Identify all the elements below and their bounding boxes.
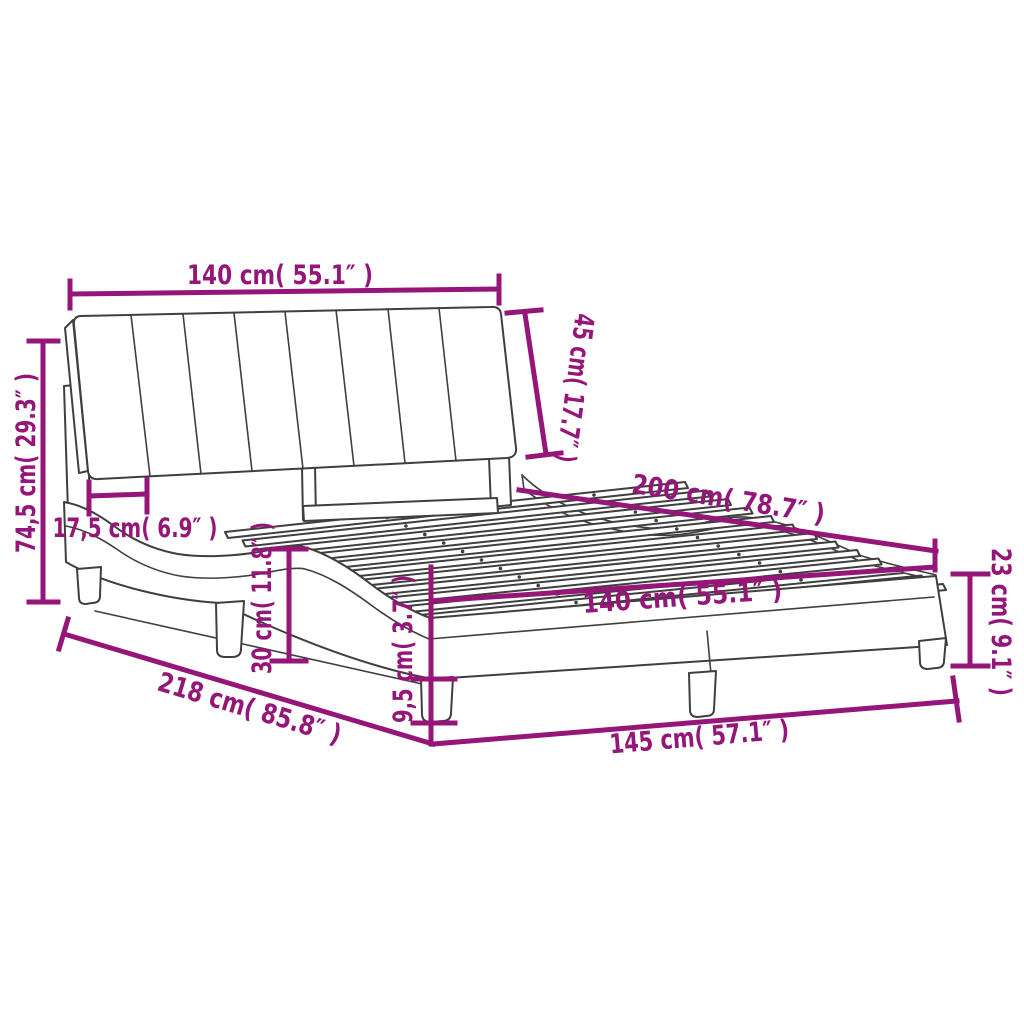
slat-screw-dot: [758, 561, 762, 565]
slat-screw-dot: [442, 541, 446, 545]
slat-screw-dot: [675, 527, 679, 531]
label-frame-side-height: 23 cm( 9.1″ ): [985, 548, 1016, 696]
slat-screw-dot: [518, 575, 522, 579]
slat-screw-dot: [480, 558, 484, 562]
slat-screw-dot: [536, 584, 540, 588]
slat-screw-dot: [461, 550, 465, 554]
leg-headboard: [77, 567, 101, 604]
slat-screw-dot: [654, 519, 658, 523]
bed-dimension-diagram: 140 cm( 55.1″ ) 45 cm( 17.7″ ) 74,5 cm( …: [0, 0, 1024, 1024]
slat-screw-dot: [716, 544, 720, 548]
label-overall-height: 74,5 cm( 29.3″ ): [11, 373, 42, 553]
slat-screw-dot: [696, 536, 700, 540]
dim-headboard-leg-inset: [89, 480, 147, 514]
slat-screw-dot: [634, 510, 638, 514]
label-side-wave-height: 30 cm( 11.8″ ): [247, 522, 278, 674]
leg-front-mid: [689, 671, 716, 717]
diagram-canvas: 140 cm( 55.1″ ) 45 cm( 17.7″ ) 74,5 cm( …: [0, 0, 1024, 1024]
label-leg-height: 9,5 cm( 3.7″ ): [388, 575, 419, 723]
leg-front-left: [421, 677, 453, 722]
slat-screw-dot: [737, 553, 741, 557]
slat-screw-dot: [779, 570, 783, 574]
slat-screw-dot: [404, 524, 408, 528]
label-headboard-leg-inset: 17,5 cm( 6.9″ ): [53, 513, 218, 544]
label-headboard-width: 140 cm( 55.1″ ): [187, 260, 373, 291]
label-overall-width: 145 cm( 57.1″ ): [608, 715, 790, 761]
slat-screw-dot: [499, 567, 503, 571]
leg-mid-left: [216, 601, 244, 657]
leg-front-right: [919, 638, 946, 669]
slat-screw-dot: [574, 601, 578, 605]
slat-screw-dot: [592, 493, 596, 497]
label-headboard-height: 45 cm( 17.7″ ): [549, 312, 599, 465]
slat-screw-dot: [423, 533, 427, 537]
dim-frame-side-height: [953, 574, 988, 666]
slat-screw-dot: [799, 578, 803, 582]
headboard: [65, 307, 516, 479]
